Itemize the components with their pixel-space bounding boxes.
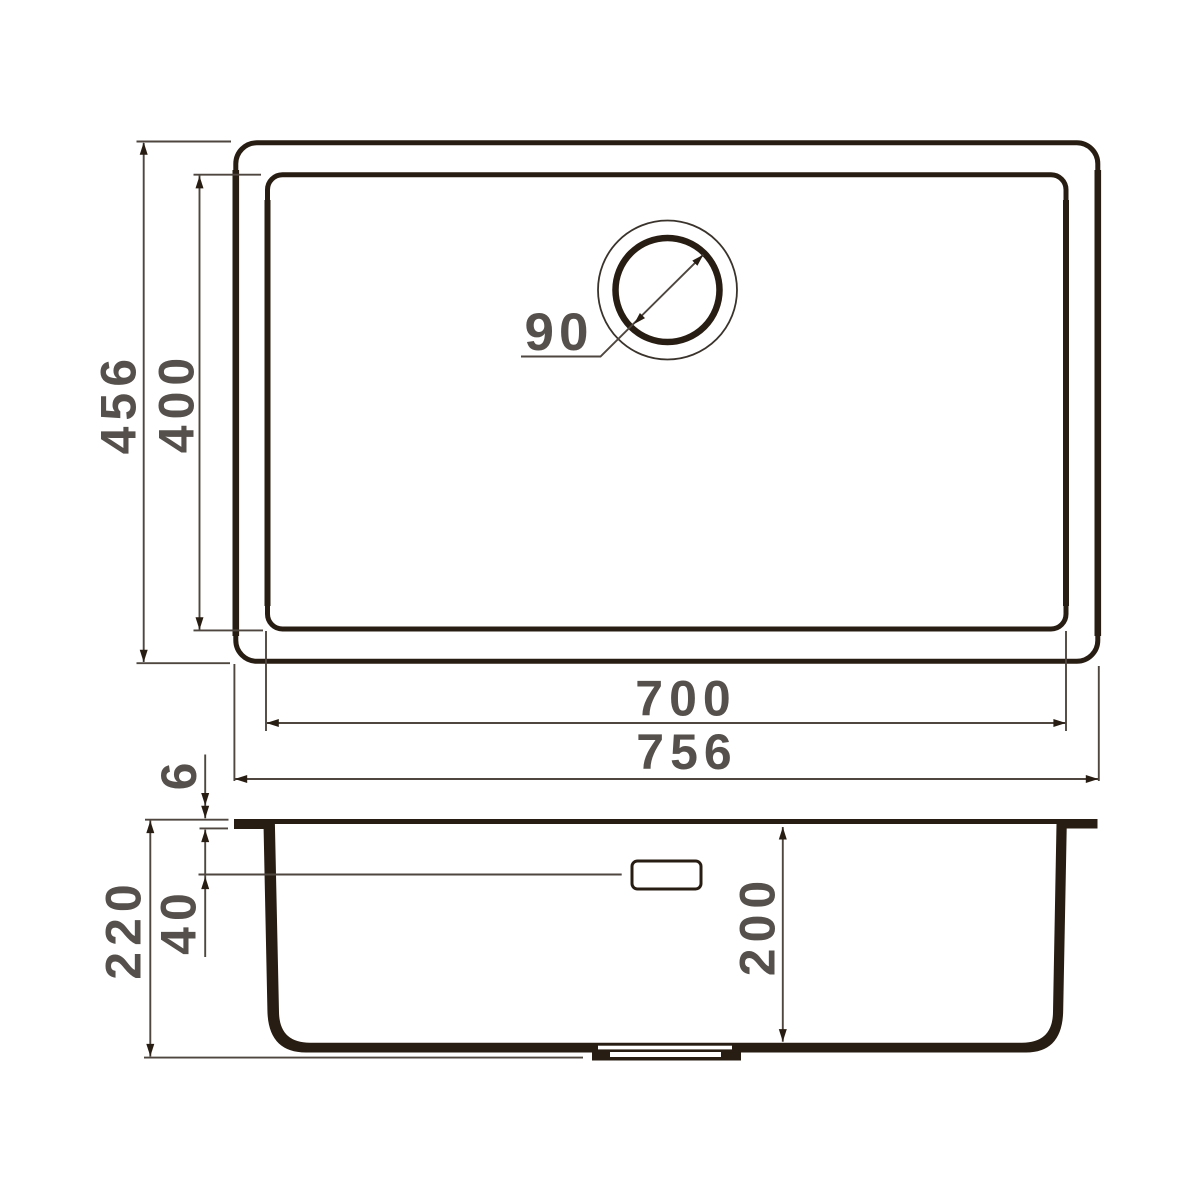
- svg-text:6: 6: [151, 757, 207, 791]
- svg-text:400: 400: [148, 352, 204, 453]
- svg-text:90: 90: [525, 303, 594, 362]
- svg-text:756: 756: [636, 724, 737, 780]
- svg-text:700: 700: [635, 670, 736, 726]
- svg-text:200: 200: [730, 875, 786, 976]
- svg-text:40: 40: [150, 887, 206, 955]
- svg-text:220: 220: [95, 878, 151, 979]
- svg-text:456: 456: [91, 353, 147, 454]
